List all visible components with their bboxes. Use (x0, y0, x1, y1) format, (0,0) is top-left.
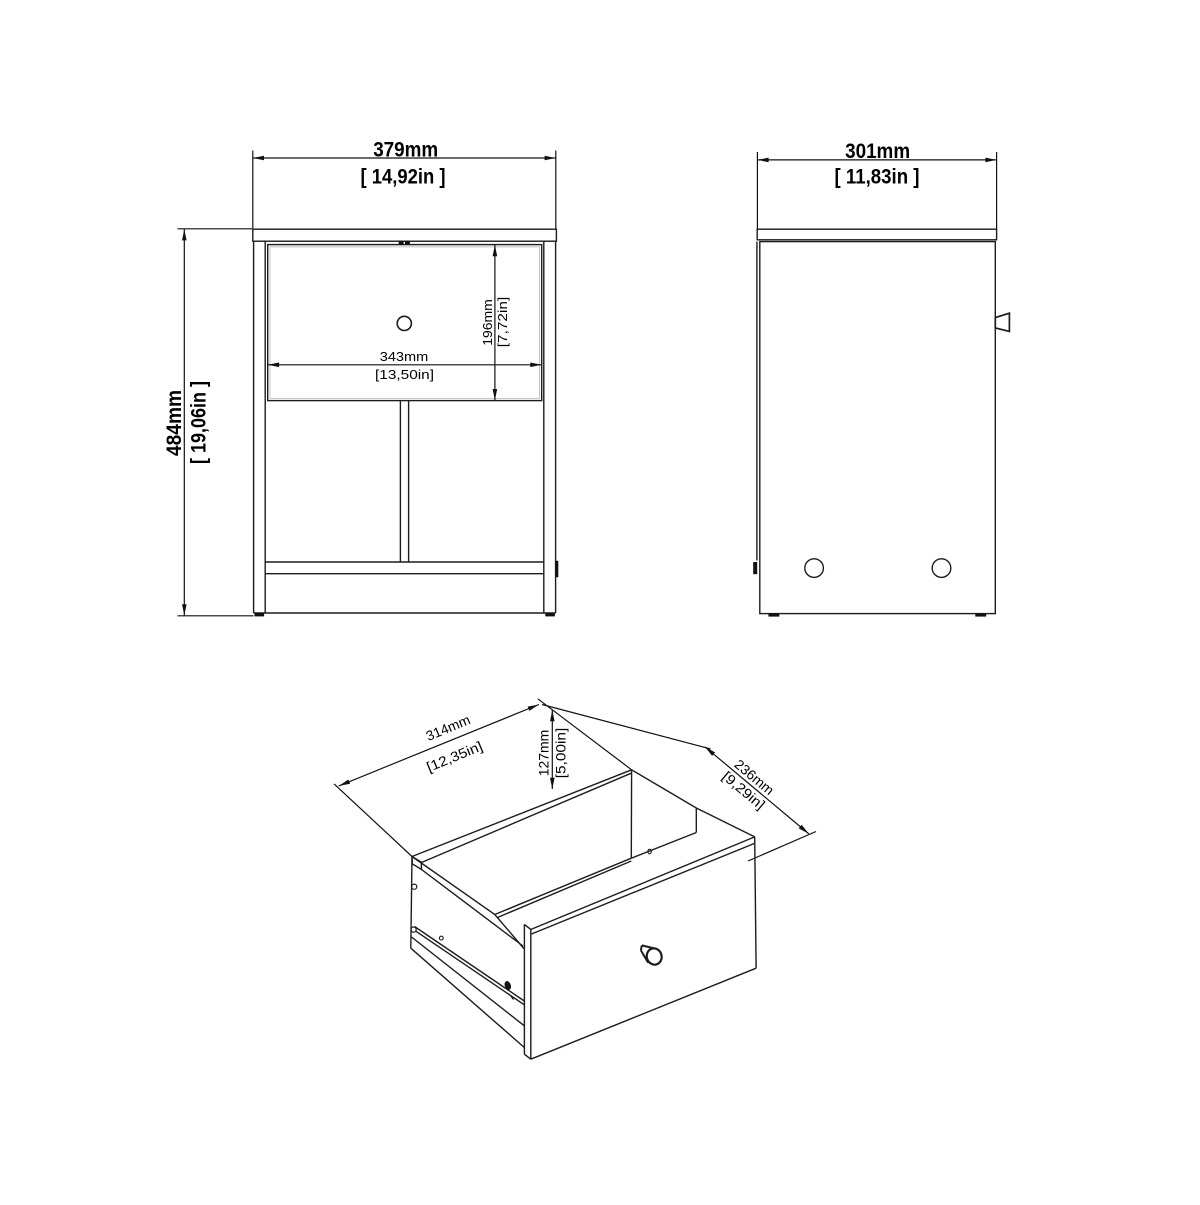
svg-text:[ 14,92in ]: [ 14,92in ] (361, 165, 446, 189)
svg-text:[5,00in]: [5,00in] (553, 728, 568, 779)
svg-text:196mm: 196mm (480, 299, 495, 346)
svg-text:484mm: 484mm (162, 390, 186, 456)
svg-text:[ 19,06in ]: [ 19,06in ] (187, 381, 211, 464)
svg-text:343mm: 343mm (380, 349, 429, 364)
svg-text:[7,72in]: [7,72in] (495, 297, 510, 348)
svg-text:301mm: 301mm (845, 139, 910, 163)
svg-text:[13,50in]: [13,50in] (375, 367, 434, 382)
svg-text:[ 11,83in ]: [ 11,83in ] (835, 165, 920, 189)
svg-text:379mm: 379mm (373, 138, 438, 162)
svg-text:127mm: 127mm (536, 730, 551, 777)
